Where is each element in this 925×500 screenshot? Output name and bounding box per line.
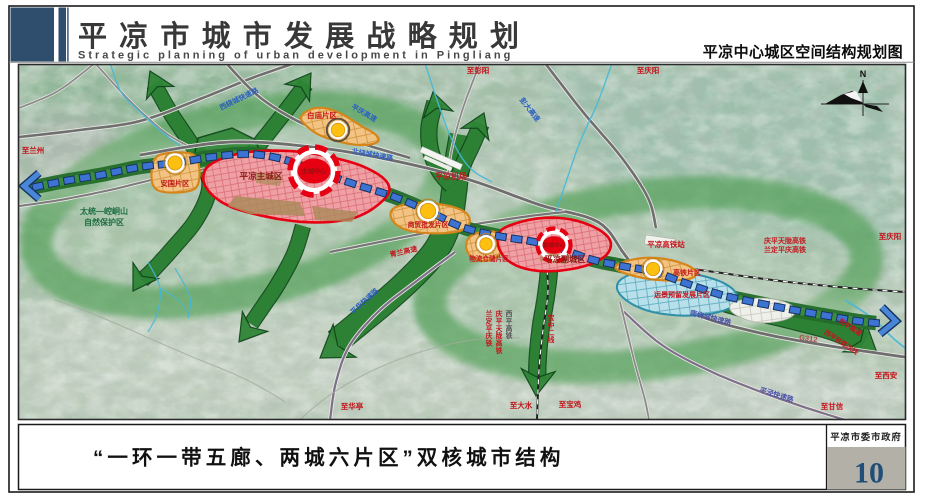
svg-text:西平高铁: 西平高铁 (505, 310, 513, 340)
svg-text:至大水: 至大水 (510, 400, 533, 410)
svg-text:N: N (860, 69, 867, 79)
svg-text:兰定平庆高铁: 兰定平庆高铁 (764, 245, 806, 254)
svg-text:自然保护区: 自然保护区 (84, 217, 124, 227)
svg-text:副城中心: 副城中心 (543, 241, 566, 249)
svg-text:远景预留发展片区: 远景预留发展片区 (654, 290, 710, 299)
svg-text:平凉高铁站: 平凉高铁站 (647, 239, 685, 249)
svg-text:主城中心: 主城中心 (302, 168, 328, 176)
svg-text:太统—崆峒山: 太统—崆峒山 (79, 206, 128, 216)
svg-text:至宝鸡: 至宝鸡 (559, 399, 582, 409)
svg-text:安国片区: 安国片区 (161, 179, 190, 188)
svg-text:至彭阳: 至彭阳 (467, 65, 490, 75)
svg-text:至华亭: 至华亭 (341, 401, 364, 411)
svg-text:宝中二线: 宝中二线 (548, 313, 555, 344)
svg-text:庆平天陇高铁: 庆平天陇高铁 (763, 236, 806, 245)
svg-text:平凉中心城区空间结构规划图: 平凉中心城区空间结构规划图 (703, 43, 903, 61)
svg-text:Strategic planning of urban de: Strategic planning of urban development … (78, 50, 513, 62)
svg-text:10: 10 (854, 457, 884, 490)
svg-text:至兰州: 至兰州 (22, 145, 45, 155)
svg-text:平凉市委市政府: 平凉市委市政府 (830, 431, 901, 442)
svg-text:庆平天陇高铁: 庆平天陇高铁 (495, 309, 503, 355)
svg-text:平凉市城市发展战略规划: 平凉市城市发展战略规划 (78, 19, 531, 53)
svg-text:商贸批发片区: 商贸批发片区 (408, 220, 449, 229)
svg-text:兰定平庆铁: 兰定平庆铁 (485, 309, 493, 348)
svg-text:白庙片区: 白庙片区 (307, 110, 337, 120)
svg-text:“一环一带五廊、两城六片区”双核城市结构: “一环一带五廊、两城六片区”双核城市结构 (93, 446, 565, 470)
svg-text:平凉副城区: 平凉副城区 (545, 254, 586, 264)
svg-text:至庆阳: 至庆阳 (879, 231, 902, 241)
svg-text:物流仓储片区: 物流仓储片区 (469, 254, 509, 263)
svg-text:至西安: 至西安 (875, 370, 898, 380)
svg-text:平凉主城区: 平凉主城区 (240, 170, 283, 181)
svg-text:高铁片区: 高铁片区 (673, 268, 701, 277)
svg-text:至甘信: 至甘信 (821, 401, 844, 411)
svg-text:平凉机场: 平凉机场 (435, 171, 467, 181)
svg-text:至庆阳: 至庆阳 (637, 65, 660, 75)
